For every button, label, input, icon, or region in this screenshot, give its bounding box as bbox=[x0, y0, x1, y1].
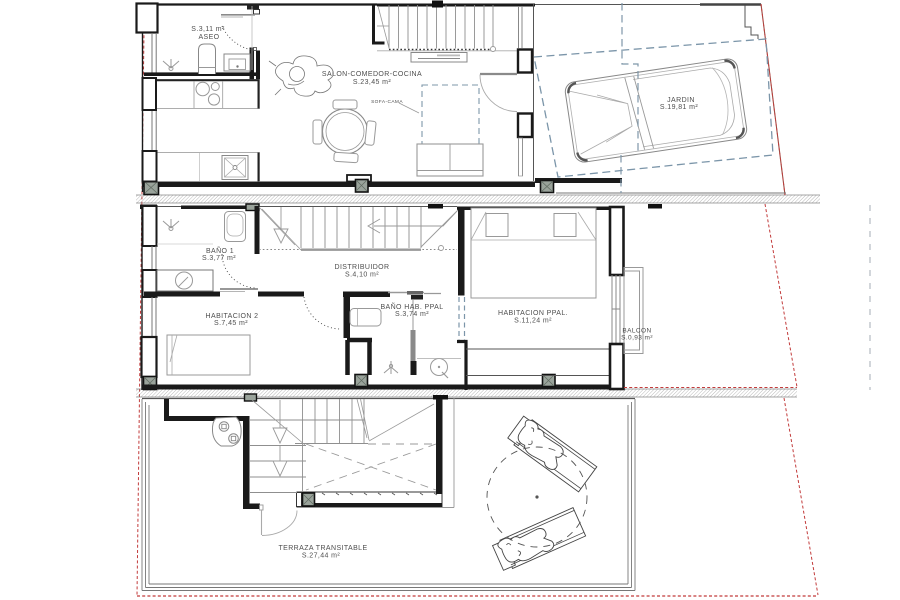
svg-text:S.27,44 m²: S.27,44 m² bbox=[302, 553, 341, 560]
svg-text:HABITACION PPAL.: HABITACION PPAL. bbox=[498, 310, 568, 317]
svg-text:HABITACION 2: HABITACION 2 bbox=[206, 313, 259, 320]
svg-text:BAÑO 1: BAÑO 1 bbox=[206, 246, 234, 255]
svg-text:BAÑO HAB. PPAL: BAÑO HAB. PPAL bbox=[380, 302, 443, 311]
svg-text:S.4,10 m²: S.4,10 m² bbox=[345, 272, 379, 279]
svg-text:S.3,11 m²: S.3,11 m² bbox=[191, 26, 225, 33]
svg-text:ASEO: ASEO bbox=[198, 34, 219, 41]
svg-text:TERRAZA TRANSITABLE: TERRAZA TRANSITABLE bbox=[278, 545, 367, 552]
svg-text:BALCON: BALCON bbox=[622, 328, 651, 335]
svg-text:S.3,74 m²: S.3,74 m² bbox=[395, 311, 429, 318]
svg-text:SALON-COMEDOR-COCINA: SALON-COMEDOR-COCINA bbox=[322, 71, 422, 78]
svg-text:S.3,77 m²: S.3,77 m² bbox=[202, 255, 236, 262]
svg-text:JARDIN: JARDIN bbox=[667, 97, 695, 104]
svg-text:S.23,45 m²: S.23,45 m² bbox=[353, 79, 392, 86]
svg-text:S.7,45 m²: S.7,45 m² bbox=[214, 320, 248, 327]
svg-text:S.0,93 m²: S.0,93 m² bbox=[621, 335, 653, 342]
svg-text:S.11,24 m²: S.11,24 m² bbox=[514, 318, 552, 325]
svg-text:SOFA-CAMA: SOFA-CAMA bbox=[371, 99, 403, 105]
svg-text:S.19,81 m²: S.19,81 m² bbox=[660, 104, 699, 111]
svg-text:DISTRIBUIDOR: DISTRIBUIDOR bbox=[335, 264, 390, 271]
